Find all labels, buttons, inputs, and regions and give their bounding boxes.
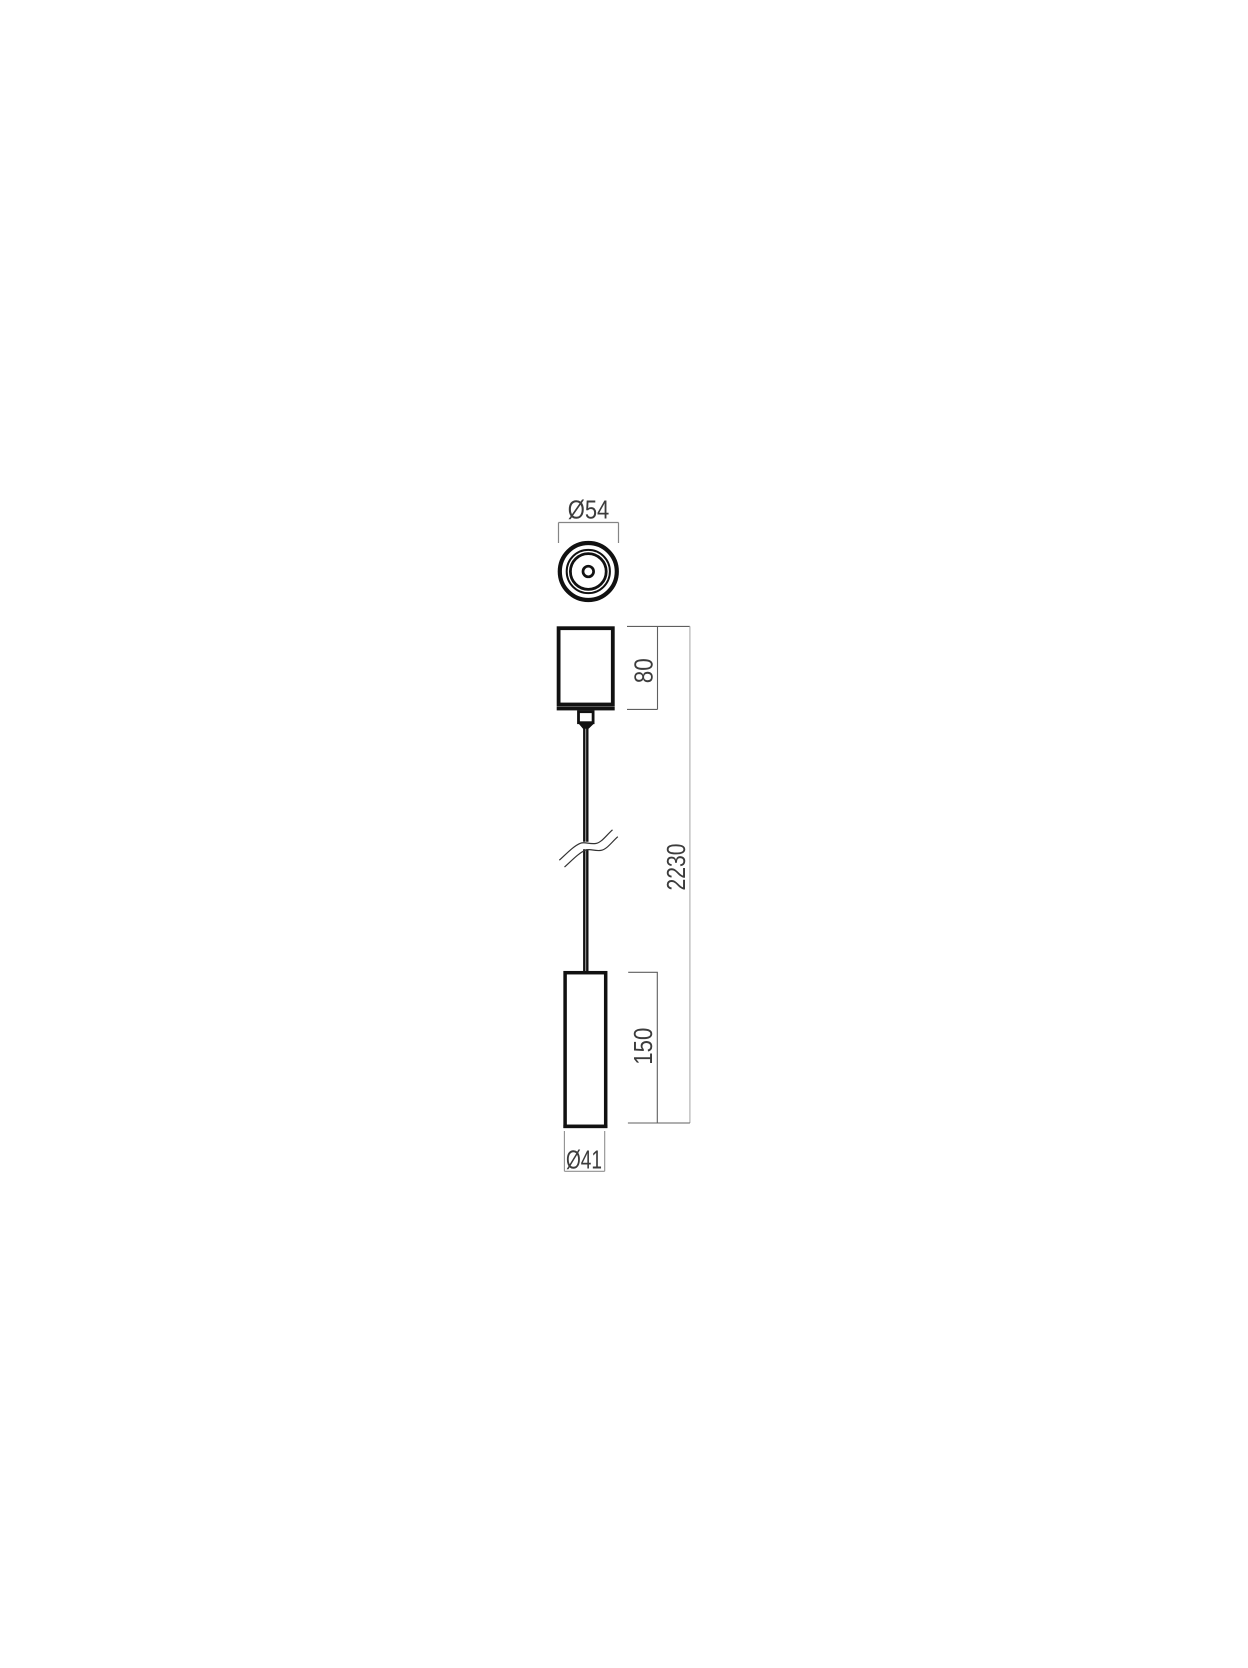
svg-text:Ø41: Ø41 (566, 1144, 602, 1174)
svg-text:80: 80 (628, 658, 658, 683)
svg-text:Ø54: Ø54 (568, 495, 610, 525)
svg-text:150: 150 (628, 1028, 658, 1065)
svg-text:2230: 2230 (661, 844, 691, 891)
